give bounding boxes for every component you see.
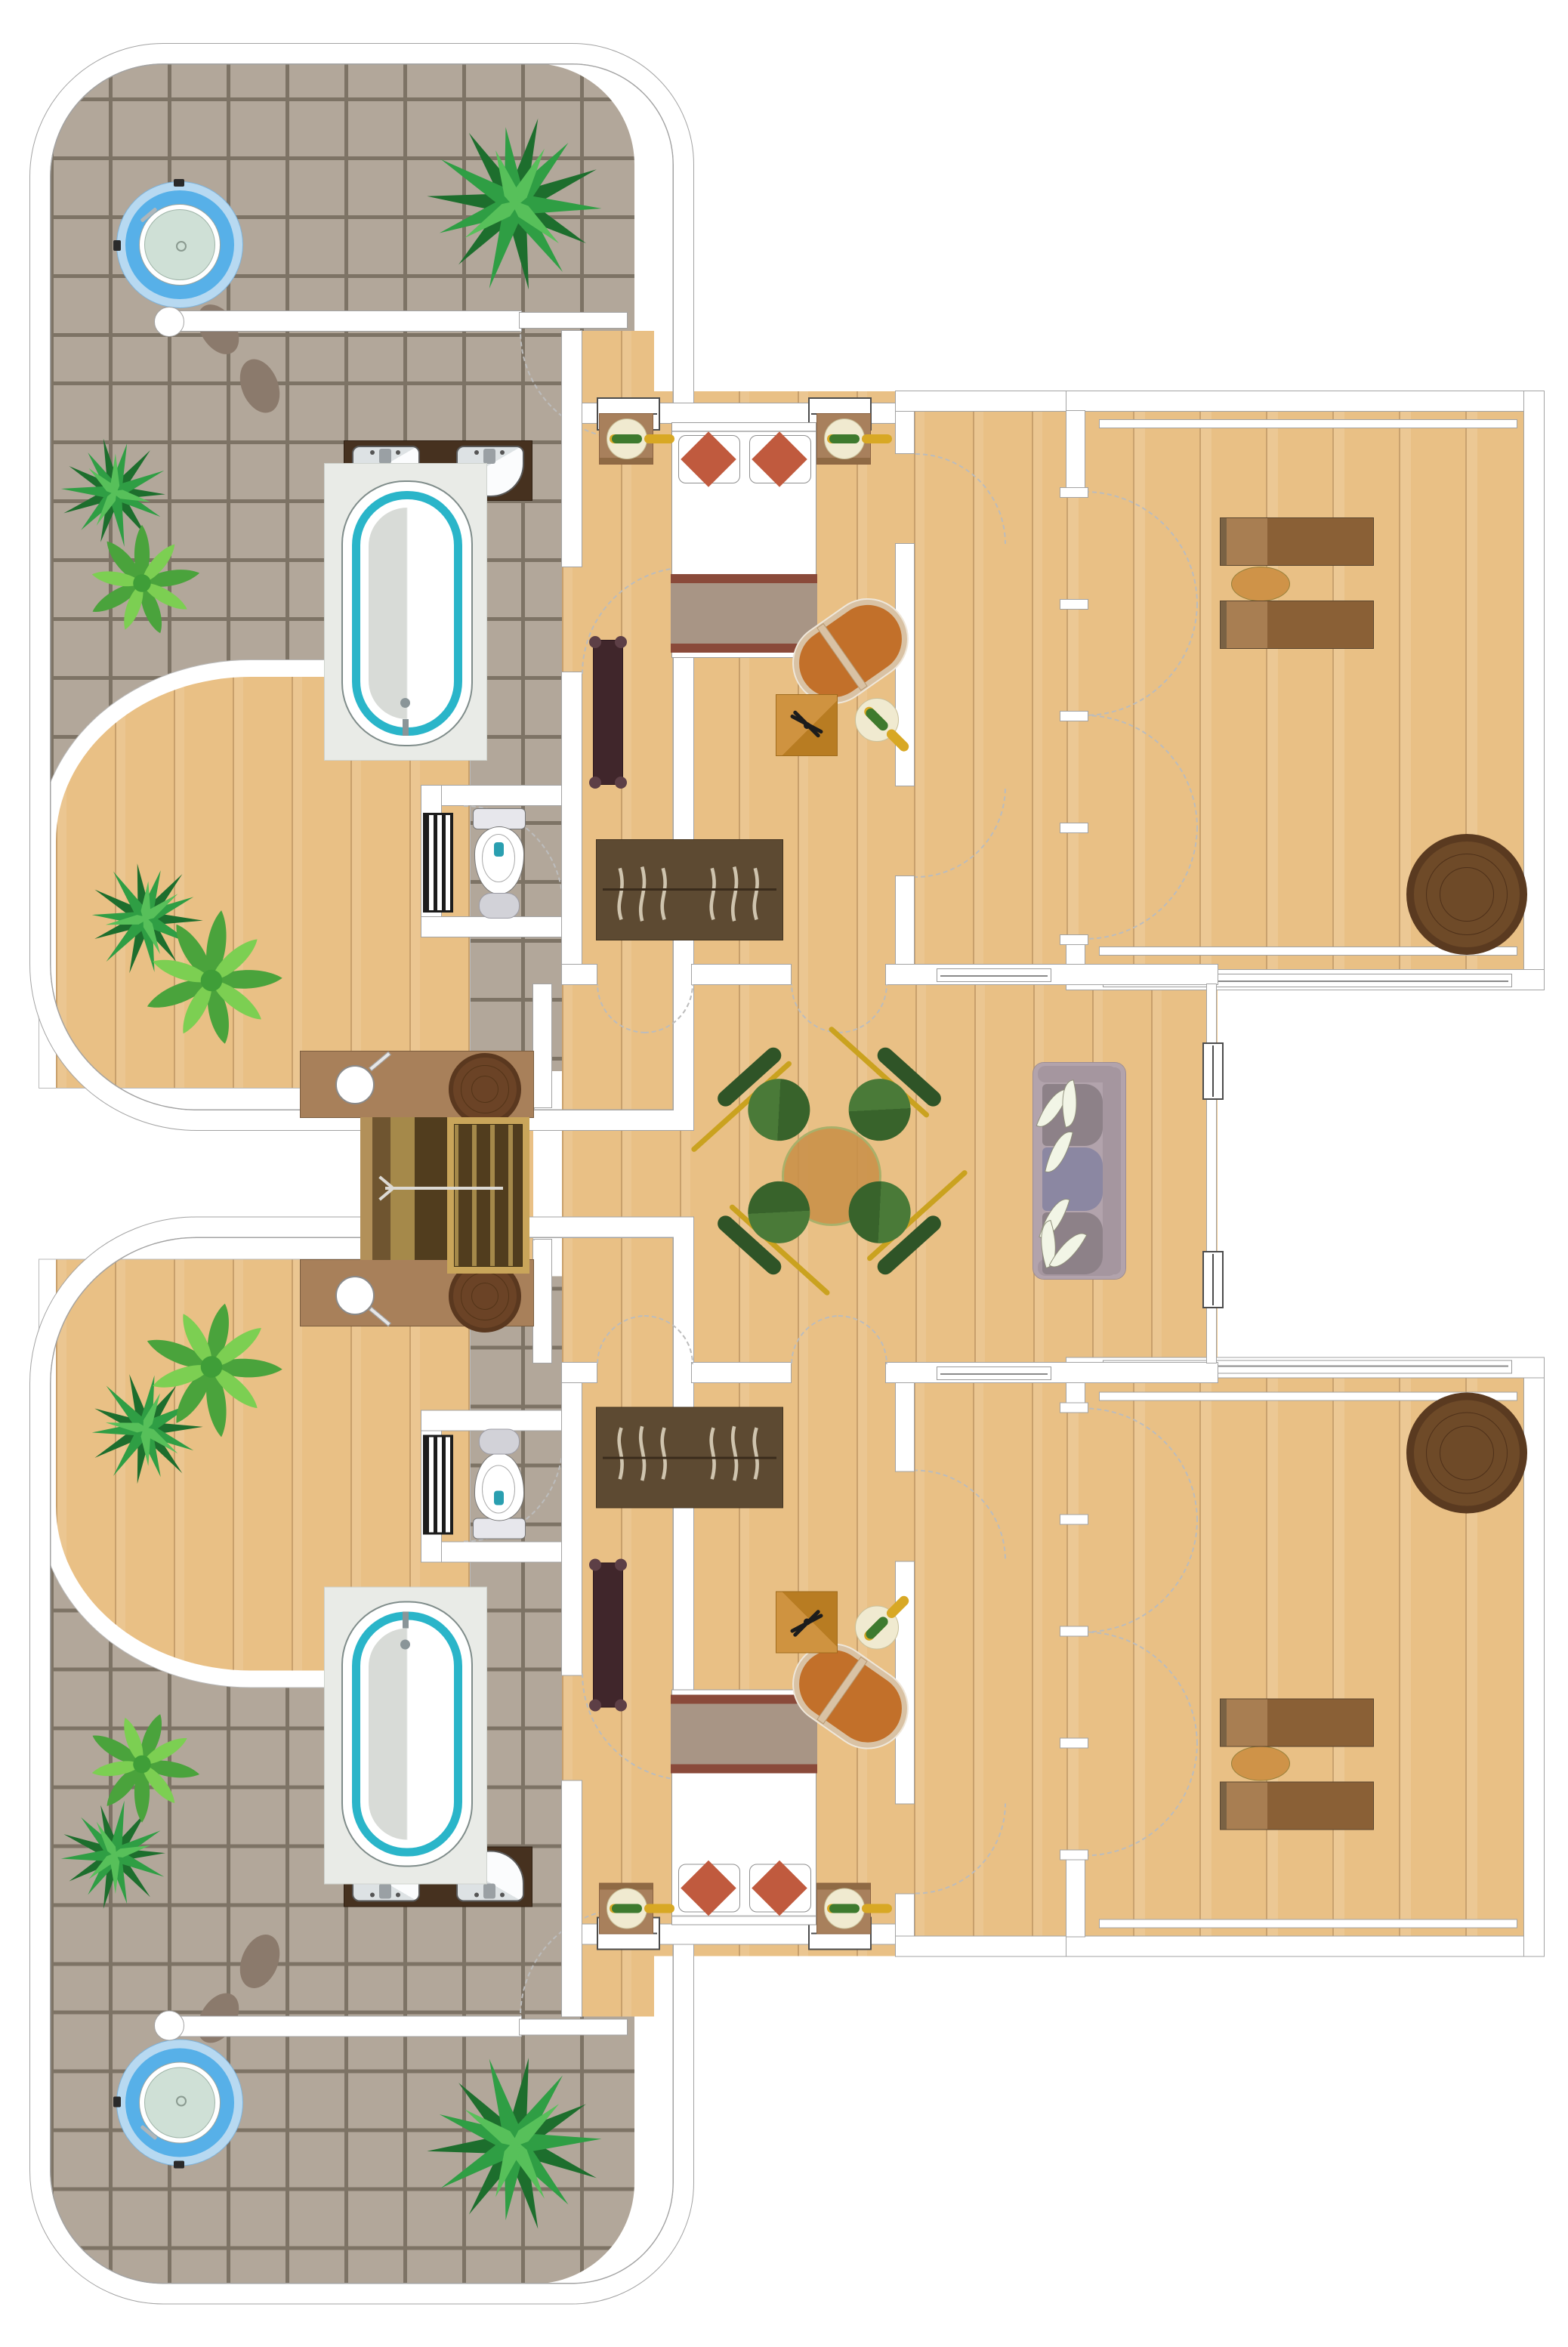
hall-wall-bottom [692,1363,791,1382]
corridor-window-band [937,1367,1051,1380]
stair-direction-arrow [376,1178,506,1198]
hall-door-swing [791,1315,840,1364]
hall-door-swing [838,1315,887,1364]
hall-wall-top [692,965,791,984]
landing-plate-handle [369,1052,391,1071]
hall-door-swing [838,984,887,1033]
hall-wall-left [533,1240,551,1363]
landing-plate [335,1065,375,1104]
hall-window [1202,1251,1224,1308]
hall-door-swing [644,984,693,1033]
landing-plate-handle [369,1307,391,1326]
hall-door-swing [597,1315,646,1364]
center-block [0,0,1568,2347]
hall-wall-bottom [562,1363,597,1382]
sofa [1033,1063,1125,1279]
stair-landing [301,1052,533,1117]
corridor-window-band [937,968,1051,982]
hall-door-swing [597,984,646,1033]
hall-wall-top [886,965,1218,984]
sofa-backrest [1103,1067,1121,1274]
landing-pot-plant [449,1053,521,1126]
hall-door-swing [791,984,840,1033]
hall-wall-left [533,984,551,1107]
hall-wall-bottom [886,1363,1218,1382]
hall-window [1202,1042,1224,1100]
sofa-armrest [1038,1066,1116,1082]
floor-plan [0,0,1568,2347]
hall-wall-top [562,965,597,984]
hall-door-swing [644,1315,693,1364]
